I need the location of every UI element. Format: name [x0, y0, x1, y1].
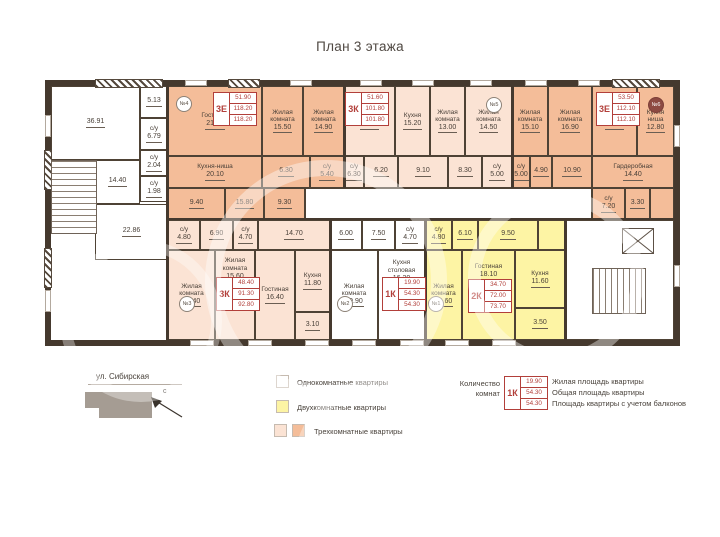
apt-total-area: 101.80 [362, 103, 388, 114]
apt6-garderobnaya: Гардеробная14.40 [592, 156, 674, 188]
room-area: 10.90 [562, 167, 582, 176]
room-area: 5.13 [146, 97, 162, 106]
room-name: Жилая комната [426, 283, 461, 299]
common-bathroom-1-98: с/у1.98 [140, 176, 168, 202]
room-area: 9.10 [415, 167, 431, 176]
apt-total-area: 91.30 [233, 288, 259, 299]
apt3-hall-6-90: 6.90 [200, 220, 233, 250]
apt-type: 3Е [214, 93, 230, 125]
apt6-bathroom-5-00: с/у5.00 [512, 156, 530, 188]
apt2-hall-6-00: 6.00 [330, 220, 362, 250]
north-arrow-icon [148, 395, 184, 419]
room-name: Гостиная [261, 286, 288, 294]
street-label: ул. Сибирская [96, 372, 149, 381]
common-room-22-86: 22.86 [95, 204, 168, 260]
room-area: 6.20 [373, 167, 389, 176]
room-area: 9.30 [277, 199, 293, 208]
apt1-info-stamp: 2К34.7072.0073.70 [468, 279, 512, 313]
window [525, 80, 547, 86]
room-area: 5.00 [513, 171, 529, 180]
building-footprint [85, 392, 152, 408]
window [400, 340, 424, 346]
apt-total-balcony-area: 73.70 [485, 301, 511, 312]
common-bathroom-6-79: с/у6.79 [140, 118, 168, 150]
room-area: 13.00 [438, 124, 458, 133]
apt4-hall-15-80: 15.80 [225, 188, 264, 220]
room-area: 16.90 [560, 124, 580, 133]
room-name: Жилая комната [263, 109, 302, 125]
room-area: 14.50 [479, 124, 499, 133]
apt1-filler [538, 220, 565, 250]
street-line [88, 384, 182, 385]
apt4-hall-9-30: 9.30 [264, 188, 305, 220]
room-name: с/у [517, 163, 525, 171]
living-area-desc: Жилая площадь квартиры [552, 376, 686, 387]
room-area: 4.90 [533, 167, 549, 176]
total-area-desc: Общая площадь квартиры [552, 387, 686, 398]
window [305, 340, 329, 346]
room-area: 15.50 [273, 124, 293, 133]
apt5-kuhnya: Кухня15.20 [395, 86, 430, 156]
apt1-number-badge: №1 [428, 296, 444, 312]
staircase-right [592, 268, 646, 314]
room-area: 22.86 [122, 227, 142, 236]
apt4-number-badge: №4 [176, 96, 192, 112]
room-area: 5.40 [319, 171, 335, 180]
room-area: 7.50 [371, 230, 387, 239]
room-name: Кухня столовая [379, 259, 424, 275]
legend-swatch-three-room-dark [292, 424, 305, 437]
apt2-info-stamp: 1К19.9054.3054.30 [382, 277, 426, 311]
apt3-bathroom-4-70: с/у4.70 [233, 220, 258, 250]
window [190, 340, 214, 346]
hatch-wall [44, 248, 52, 288]
room-name: Жилая комната [431, 109, 464, 125]
window [470, 80, 492, 86]
rooms-count-line2: комнат [436, 389, 500, 399]
apt1-bathroom-4-80: с/у4.80 [425, 220, 452, 250]
hatch-wall [228, 79, 260, 88]
wall [168, 218, 674, 220]
apt4-zhilaya-2: Жилая комната14.90 [303, 86, 344, 156]
apt5-hall-9-10: 9.10 [398, 156, 448, 188]
wall [511, 86, 514, 188]
legend-swatch-two-room [276, 400, 289, 413]
apt3-zhilaya-1: Жилая комната16.40 [168, 250, 215, 340]
window [578, 80, 600, 86]
apt-total-balcony-area: 118.20 [230, 114, 256, 125]
apt-total-balcony-area: 92.80 [233, 299, 259, 310]
room-area: 2.04 [146, 162, 162, 171]
room-name: с/у [493, 163, 501, 171]
apt3-info-stamp: 3К48.4091.3092.80 [216, 277, 260, 311]
apt3-number-badge: №3 [179, 296, 195, 312]
apt-total-balcony-area: 54.30 [399, 299, 425, 310]
apt6-room-3-30: 3.30 [625, 188, 650, 220]
common-bathroom-2-04: с/у2.04 [140, 150, 168, 176]
apt5-bathroom-6-30: с/у6.30 [344, 156, 364, 188]
room-area: 14.70 [284, 230, 304, 239]
window [185, 80, 207, 86]
hatch-wall [612, 79, 660, 88]
legend-label-three-room: Трехкомнатные квартиры [314, 427, 403, 436]
apt-type: 3К [217, 278, 233, 310]
elevator-cross-icon [623, 229, 653, 253]
legend-sample-stamp: 1К19.9054.3054.30 [504, 376, 548, 410]
apt1-hall-6-10: 6.10 [452, 220, 478, 250]
apt5-hall-6-20: 6.20 [364, 156, 398, 188]
room-name: с/у [434, 226, 442, 234]
room-name: с/у [604, 195, 612, 203]
room-area: 11.80 [303, 280, 322, 289]
room-name: Жилая комната [304, 109, 343, 125]
room-area: 4.70 [402, 234, 418, 243]
room-area: 14.40 [108, 177, 128, 186]
window [445, 340, 469, 346]
apt6-zhilaya-1: Жилая комната15.10 [512, 86, 548, 156]
rooms-count-label: Количествокомнат [436, 379, 500, 398]
apt-living-area: 19.90 [399, 278, 425, 288]
apt6-zhilaya-2: Жилая комната16.90 [548, 86, 592, 156]
room-name: с/у [180, 226, 188, 234]
apt1-kuhnya: Кухня11.60 [515, 250, 565, 308]
rooms-count-line1: Количество [436, 379, 500, 389]
room-area: 4.70 [238, 234, 254, 243]
apt4-bathroom-5-40: с/у5.40 [310, 156, 344, 188]
apt-type: 2К [469, 280, 485, 312]
room-area: 16.40 [265, 294, 285, 303]
room-area: 6.00 [338, 230, 354, 239]
room-name: Кухня [304, 272, 321, 280]
apt5-bathroom-5-00: с/у5.00 [482, 156, 512, 188]
room-name: с/у [350, 163, 358, 171]
room-name: Кухня [404, 112, 421, 120]
apt-type: 3Е [597, 93, 613, 125]
apt3-bathroom-4-80: с/у4.80 [168, 220, 200, 250]
apt6-number-badge: №6 [648, 97, 664, 113]
room-area: 6.30 [346, 171, 362, 180]
apt5-number-badge: №5 [486, 97, 502, 113]
apt6-filler [650, 188, 674, 220]
room-name: с/у [406, 226, 414, 234]
window [45, 115, 51, 137]
legend-descriptions: Жилая площадь квартирыОбщая площадь квар… [552, 376, 686, 409]
room-area: 15.80 [235, 199, 255, 208]
apt-total-area: 54.30 [521, 387, 547, 398]
apt1-hall-9-50: 9.50 [478, 220, 538, 250]
room-area: 6.79 [146, 133, 162, 142]
room-area: 14.40 [623, 171, 643, 180]
window [674, 265, 680, 287]
common-room-36-91: 36.91 [51, 86, 140, 160]
apt6-hall-4-90: 4.90 [530, 156, 552, 188]
floor-title: План 3 этажа [0, 39, 720, 54]
room-name: с/у [241, 226, 249, 234]
apt-total-balcony-area: 112.10 [613, 114, 639, 125]
legend-swatch-one-room [276, 375, 289, 388]
legend-swatch-three-room-light [274, 424, 287, 437]
room-name: Гостиная [475, 263, 502, 271]
apt-total-area: 72.00 [485, 290, 511, 301]
apt2-bathroom-4-70: с/у4.70 [395, 220, 425, 250]
apt-total-area: 54.30 [399, 288, 425, 299]
room-area: 3.50 [532, 319, 548, 328]
room-area: 14.90 [314, 124, 334, 133]
staircase-left [51, 160, 97, 234]
window [360, 80, 382, 86]
window [352, 340, 376, 346]
room-name: с/у [323, 163, 331, 171]
room-name: Жилая комната [331, 283, 377, 299]
apt3-gostinaya: Гостиная16.40 [255, 250, 295, 340]
room-area: 15.20 [403, 120, 423, 129]
room-area: 6.30 [278, 167, 294, 176]
hatch-wall [95, 79, 163, 88]
apt3-kuhnya: Кухня11.80 [295, 250, 330, 312]
apt6-info-stamp: 3Е53.50112.10112.10 [596, 92, 640, 126]
apt2-zhilaya: Жилая комната19.90 [330, 250, 378, 340]
apt-type: 1К [505, 377, 521, 409]
room-name: Кухня [531, 270, 548, 278]
window [45, 290, 51, 312]
apt1-zhilaya: Жилая комната16.60 [425, 250, 462, 340]
room-area: 4.80 [176, 234, 192, 243]
apt6-bathroom-7-20: с/у7.20 [592, 188, 625, 220]
north-label: с [163, 388, 167, 395]
apt5-hall-8-30: 8.30 [448, 156, 482, 188]
apt-total-area: 118.20 [230, 103, 256, 114]
room-area: 3.30 [630, 199, 646, 208]
common-room-5-13: 5.13 [140, 86, 168, 118]
apt4-info-stamp: 3Е51.90118.20118.20 [213, 92, 257, 126]
room-name: с/у [150, 125, 158, 133]
room-name: с/у [150, 180, 158, 188]
common-room-14-40: 14.40 [95, 160, 140, 204]
apt4-zhilaya-1: Жилая комната15.50 [262, 86, 303, 156]
room-area: 9.40 [189, 199, 205, 208]
apt5-zhilaya-1: Жилая комната13.00 [430, 86, 465, 156]
room-area: 5.00 [489, 171, 505, 180]
apt-total-balcony-area: 101.80 [362, 114, 388, 125]
apt-type: 3К [346, 93, 362, 125]
elevator-shaft [622, 228, 654, 254]
apt5-zhilaya-2: Жилая комната14.50 [465, 86, 512, 156]
apt-type: 1К [383, 278, 399, 310]
wall [329, 220, 332, 340]
room-area: 3.10 [305, 321, 321, 330]
building-footprint [99, 408, 152, 418]
legend-label-one-room: Однокомнатные квартиры [297, 378, 388, 387]
room-name: Жилая комната [216, 257, 254, 273]
room-name: Жилая комната [513, 109, 547, 125]
window [290, 80, 312, 86]
apt5-info-stamp: 3К51.60101.80101.80 [345, 92, 389, 126]
balcony-area-desc: Площадь квартиры с учетом балконов [552, 398, 686, 409]
apt4-hall-6-30: 6.30 [262, 156, 310, 188]
room-name: Жилая комната [169, 283, 214, 299]
room-area: 4.80 [431, 234, 447, 243]
apt3-hall-14-70: 14.70 [258, 220, 330, 250]
apt1-balcony-3-50: 3.50 [515, 308, 565, 340]
apt-living-area: 34.70 [485, 280, 511, 290]
room-area: 15.10 [520, 124, 540, 133]
room-area: 36.91 [86, 118, 106, 127]
apt-living-area: 19.90 [521, 377, 547, 387]
room-area: 9.50 [500, 230, 516, 239]
room-area: 11.60 [531, 278, 550, 287]
apt2-number-badge: №2 [337, 296, 353, 312]
apt-total-area: 112.10 [613, 103, 639, 114]
room-area: 1.98 [146, 188, 162, 197]
legend-label-two-room: Двухкомнатные квартиры [297, 403, 386, 412]
room-name: Гардеробная [613, 163, 652, 171]
apt4-hall-9-40: 9.40 [168, 188, 225, 220]
room-area: 8.30 [457, 167, 473, 176]
room-name: Кухня-ниша [197, 163, 233, 171]
apt-living-area: 48.40 [233, 278, 259, 288]
apt2-hall-7-50: 7.50 [362, 220, 395, 250]
window [412, 80, 434, 86]
wall [564, 220, 567, 340]
room-name: с/у [150, 154, 158, 162]
room-area: 6.90 [209, 230, 225, 239]
apt-total-balcony-area: 54.30 [521, 398, 547, 409]
room-area: 6.10 [457, 230, 473, 239]
room-name: Жилая комната [549, 109, 591, 125]
window [492, 340, 516, 346]
room-area: 12.80 [646, 124, 666, 133]
wall [166, 86, 169, 340]
window [674, 125, 680, 147]
apt3-balcony-3-10: 3.10 [295, 312, 330, 340]
apt-living-area: 51.60 [362, 93, 388, 103]
room-area: 20.10 [205, 171, 225, 180]
apt4-kuhnya-nisha: Кухня-ниша20.10 [168, 156, 262, 188]
apt6-hall-10-90: 10.90 [552, 156, 592, 188]
window [248, 340, 272, 346]
apt-living-area: 51.90 [230, 93, 256, 103]
corridor [305, 188, 592, 220]
room-area: 7.20 [601, 203, 617, 212]
apt-living-area: 53.50 [613, 93, 639, 103]
